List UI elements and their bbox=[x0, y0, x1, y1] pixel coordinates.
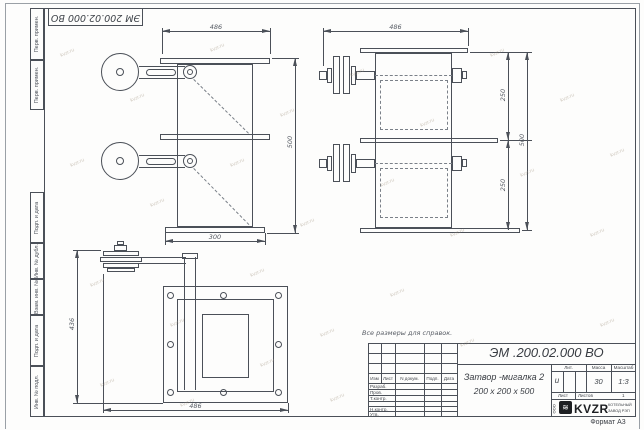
tb-mass-label: Масса bbox=[586, 365, 611, 370]
tb-line bbox=[551, 399, 636, 400]
tb-row-utv: Утв. bbox=[370, 412, 379, 417]
dim-side-total: 500 bbox=[518, 120, 526, 160]
tb-line bbox=[368, 401, 457, 402]
tb-name-line1: Затвор -мигалка 2 bbox=[457, 372, 551, 382]
axle-washer bbox=[327, 156, 332, 171]
weight-stack-plate bbox=[103, 251, 139, 256]
dim-side-upper: 250 bbox=[499, 75, 507, 115]
weight-stack-plate bbox=[100, 257, 142, 262]
tb-lit-value: и bbox=[551, 376, 563, 385]
axle-nut bbox=[319, 159, 327, 168]
margin-box-podp-data-1: Подп. и дата bbox=[30, 192, 44, 243]
weight-plate bbox=[333, 56, 340, 94]
tb-row-razrab: Разраб. bbox=[370, 384, 387, 389]
paper-edge-left bbox=[5, 3, 6, 429]
shaft-axis bbox=[375, 163, 452, 164]
margin-label: Инв. № дубл. bbox=[34, 244, 40, 278]
margin-box-perv-primen-2: Перв. примен. bbox=[30, 60, 44, 110]
dim-front-bottom: 300 bbox=[165, 233, 265, 241]
stack-bolt bbox=[114, 245, 127, 251]
bolt-hole bbox=[167, 292, 174, 299]
margin-label: Инв. № подл. bbox=[34, 374, 40, 408]
margin-box-inv-dubl: Инв. № дубл. bbox=[30, 243, 44, 279]
tb-mass-value: 30 bbox=[586, 377, 611, 386]
margin-label: Перв. примен. bbox=[34, 16, 40, 53]
tb-sheets-label: Листов bbox=[578, 393, 593, 398]
ext-line bbox=[267, 233, 299, 234]
bolt-hole bbox=[275, 292, 282, 299]
dim-arrow bbox=[525, 52, 529, 60]
tb-header-sign: Подп. bbox=[424, 376, 441, 381]
ext-line bbox=[288, 403, 289, 413]
reference-note: Все размеры для справок. bbox=[362, 329, 482, 337]
bolt-hole bbox=[220, 389, 227, 396]
bolt-hole bbox=[275, 341, 282, 348]
ext-line bbox=[470, 52, 532, 53]
logo-text-line2: ЗАВОД РЭП bbox=[608, 409, 630, 413]
paper-edge-right bbox=[639, 3, 640, 429]
ext-line bbox=[468, 28, 469, 46]
tb-header-date: Дата bbox=[441, 376, 457, 381]
tb-sheets-value: 1 bbox=[622, 393, 625, 398]
margin-box-vzam-inv: Взам. инв. № bbox=[30, 279, 44, 315]
flap-plate-hidden bbox=[380, 168, 448, 218]
dim-arrow bbox=[506, 140, 510, 148]
tb-name-line2: 200 х 200 х 500 bbox=[457, 386, 551, 396]
bolt-hole bbox=[167, 389, 174, 396]
dim-top-width: 486 bbox=[103, 402, 288, 410]
tb-header-izm: Изм bbox=[368, 376, 381, 381]
tb-line bbox=[563, 371, 564, 392]
margin-box-inv-podl: Инв. № подл. bbox=[30, 366, 44, 417]
ext-line bbox=[103, 274, 104, 413]
tb-scale-label: Масштаб bbox=[611, 365, 636, 370]
ext-line bbox=[270, 28, 271, 54]
dim-side-lower: 250 bbox=[499, 165, 507, 205]
axle-nut bbox=[319, 71, 327, 80]
tb-header-doc: N докум. bbox=[395, 376, 424, 381]
side-bottom-flange bbox=[360, 228, 520, 233]
dim-arrow bbox=[293, 225, 297, 233]
dim-front-height: 500 bbox=[286, 122, 294, 162]
tb-line bbox=[368, 353, 457, 354]
tb-line bbox=[368, 363, 457, 364]
lever-slot bbox=[146, 69, 176, 76]
dim-arrow bbox=[75, 250, 79, 258]
dim-side-width: 486 bbox=[323, 23, 468, 31]
front-mid-flange bbox=[160, 134, 270, 140]
drawing-sheet: ЭМ 200.02.000 ВО Перв. примен. Перв. при… bbox=[0, 0, 644, 430]
weight-stack-washer bbox=[107, 268, 135, 272]
dim-line bbox=[323, 31, 468, 32]
logo-mark: ≋ bbox=[559, 401, 572, 414]
axle-washer bbox=[327, 68, 332, 83]
ext-line bbox=[265, 233, 266, 245]
margin-box-podp-data-2: Подп. и дата bbox=[30, 315, 44, 366]
tb-line bbox=[368, 373, 457, 374]
tb-sheet-label: Лист bbox=[551, 393, 575, 398]
weight-shaft bbox=[356, 159, 375, 168]
dim-line bbox=[295, 58, 296, 233]
counterweight-hub bbox=[116, 157, 124, 165]
format-label: Формат А3 bbox=[578, 419, 638, 426]
weight-plate bbox=[343, 144, 350, 182]
tb-line bbox=[575, 371, 576, 392]
ext-line bbox=[522, 230, 532, 231]
dim-arrow bbox=[506, 222, 510, 230]
dim-top-height: 436 bbox=[68, 304, 76, 344]
bolt-hole bbox=[167, 341, 174, 348]
pivot-bolt-center bbox=[187, 69, 193, 75]
dim-line bbox=[162, 31, 270, 32]
margin-label: Перв. примен. bbox=[34, 67, 40, 104]
dim-arrow bbox=[75, 395, 79, 403]
dim-line bbox=[527, 52, 528, 230]
margin-label: Взам. инв. № bbox=[34, 280, 40, 314]
dim-arrow bbox=[525, 222, 529, 230]
dim-arrow bbox=[293, 58, 297, 66]
tb-row-tkontr: Т.контр. bbox=[370, 396, 387, 401]
margin-label: Подп. и дата bbox=[34, 324, 40, 356]
paper-edge-top bbox=[5, 3, 639, 4]
margin-label: Подп. и дата bbox=[34, 201, 40, 233]
logo-ooo: ООО bbox=[552, 400, 557, 414]
flap-plate-hidden bbox=[380, 80, 448, 130]
tb-lit-label: Лит. bbox=[551, 365, 586, 370]
bolt-hole bbox=[275, 389, 282, 396]
tb-row-prov: Пров. bbox=[370, 390, 382, 395]
weight-shaft bbox=[356, 71, 375, 80]
counterweight-hub bbox=[116, 68, 124, 76]
ext-line bbox=[323, 28, 324, 66]
tb-designation: ЭМ .200.02.000 ВО bbox=[457, 345, 636, 360]
logo-text-line1: КОТЕЛЬНЫЙ bbox=[608, 403, 632, 407]
bolt-hole bbox=[220, 292, 227, 299]
shaft-end bbox=[452, 68, 462, 83]
dim-line bbox=[165, 241, 265, 242]
shaft-stub bbox=[462, 159, 467, 167]
dim-front-width: 486 bbox=[162, 23, 270, 31]
dim-arrow bbox=[506, 52, 510, 60]
shaft-axis bbox=[375, 75, 452, 76]
tb-scale-value: 1:3 bbox=[611, 377, 636, 386]
stack-bolt-cap bbox=[117, 241, 124, 245]
logo-brand: KVZR bbox=[574, 402, 609, 416]
side-mid-flange bbox=[360, 138, 498, 143]
margin-box-perv-primen-1: Перв. примен. bbox=[30, 8, 44, 60]
shaft-end bbox=[452, 156, 462, 171]
dim-arrow bbox=[506, 132, 510, 140]
weight-plate bbox=[333, 144, 340, 182]
tb-header-list: Лист bbox=[381, 376, 395, 381]
tb-line bbox=[575, 392, 576, 399]
lever-arm-plan bbox=[139, 257, 186, 264]
lever-slot bbox=[146, 158, 176, 165]
front-body bbox=[177, 64, 253, 227]
weight-plate bbox=[343, 56, 350, 94]
stamp-designation: ЭМ 200.02.000 ВО bbox=[48, 12, 143, 23]
dim-line bbox=[77, 250, 78, 403]
shaft-stub bbox=[462, 71, 467, 79]
dim-line bbox=[103, 410, 288, 411]
pivot-bolt-center bbox=[187, 158, 193, 164]
duct-opening bbox=[202, 314, 249, 378]
